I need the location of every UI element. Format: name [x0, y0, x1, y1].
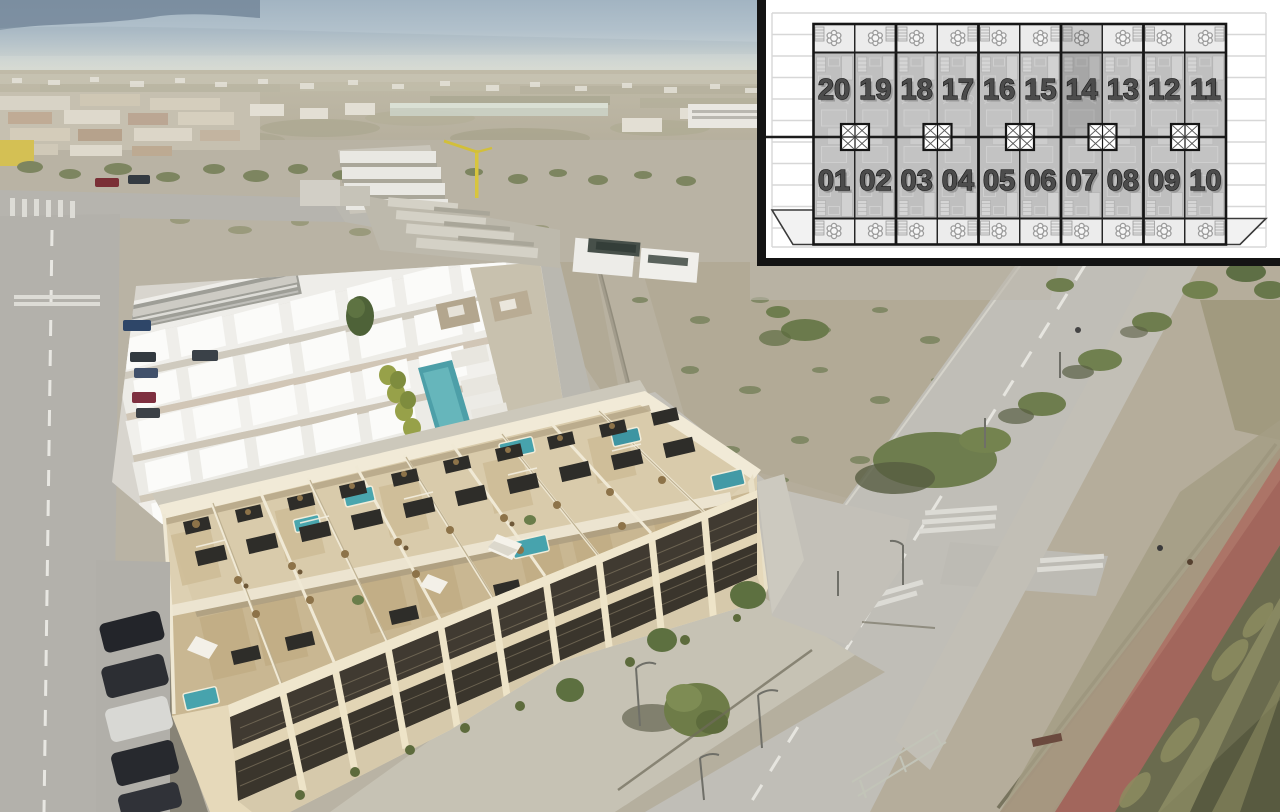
svg-text:05: 05 — [983, 165, 1015, 197]
svg-text:03: 03 — [900, 165, 932, 197]
svg-text:16: 16 — [983, 74, 1015, 106]
svg-text:20: 20 — [818, 74, 850, 106]
svg-text:08: 08 — [1107, 165, 1139, 197]
svg-text:17: 17 — [942, 74, 974, 106]
svg-text:07: 07 — [1065, 165, 1097, 197]
svg-text:14: 14 — [1065, 74, 1097, 106]
svg-text:04: 04 — [942, 165, 974, 197]
svg-text:11: 11 — [1190, 74, 1221, 106]
svg-text:02: 02 — [859, 165, 891, 197]
svg-text:12: 12 — [1148, 74, 1180, 106]
svg-text:15: 15 — [1024, 74, 1056, 106]
svg-text:09: 09 — [1148, 165, 1180, 197]
svg-text:18: 18 — [900, 74, 932, 106]
svg-text:19: 19 — [859, 74, 891, 106]
svg-text:01: 01 — [818, 165, 850, 197]
svg-text:13: 13 — [1107, 74, 1139, 106]
svg-text:10: 10 — [1189, 165, 1221, 197]
svg-text:06: 06 — [1024, 165, 1056, 197]
